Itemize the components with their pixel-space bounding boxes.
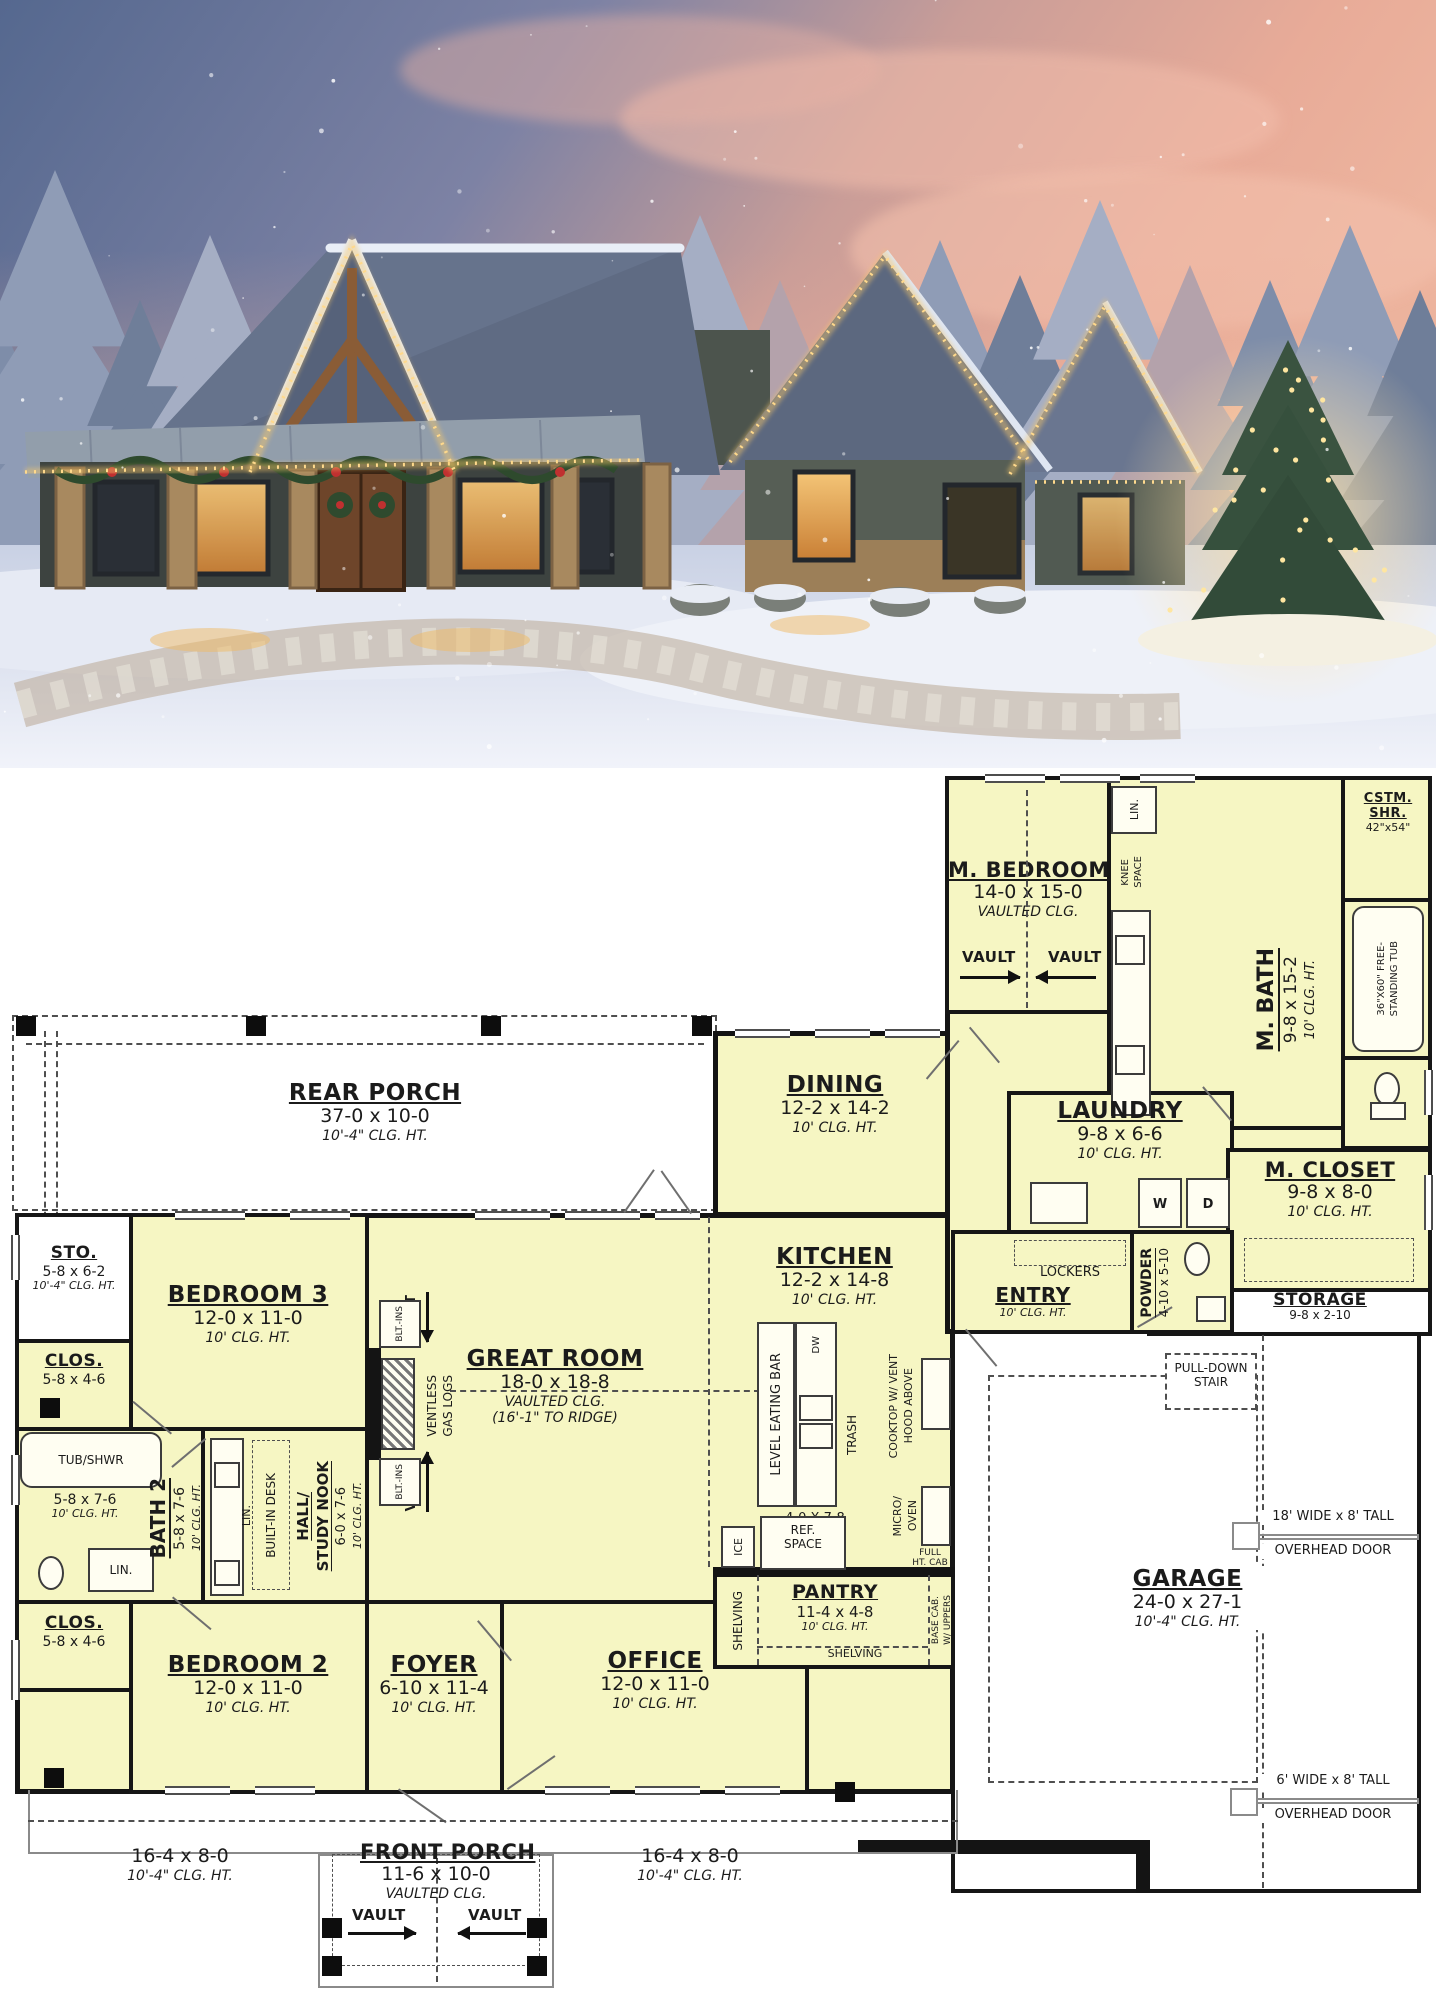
overhead-door-6-label: 6' WIDE x 8' TALL bbox=[1262, 1774, 1404, 1789]
overhead-door-18 bbox=[1256, 1534, 1419, 1540]
house-plan-page: REAR PORCH 37-0 x 10-0 10'-4" CLG. HT. bbox=[0, 0, 1436, 2000]
vault-arrow-down bbox=[426, 1292, 429, 1342]
great-room-label: GREAT ROOM 18-0 x 18-8 VAULTED CLG. (16'… bbox=[450, 1346, 660, 1426]
window bbox=[475, 1211, 550, 1220]
lockers-label: LOCKERS bbox=[1014, 1266, 1126, 1281]
bath2-label: BATH 2 5-8 x 7-6 10' CLG. HT. bbox=[142, 1448, 206, 1588]
porch-column bbox=[692, 1016, 712, 1036]
porch-column bbox=[246, 1016, 266, 1036]
base-cab-label: BASE CAB. W/ UPPERS bbox=[928, 1578, 956, 1662]
sink bbox=[214, 1462, 240, 1488]
bedroom3-label: BEDROOM 312-0 x 11-010' CLG. HT. bbox=[148, 1282, 348, 1346]
laundry-sink bbox=[1030, 1182, 1088, 1224]
kitchen-open-line bbox=[708, 1217, 710, 1567]
vault-text: VAULT bbox=[352, 1906, 406, 1924]
rear-porch-label: REAR PORCH 37-0 x 10-0 10'-4" CLG. HT. bbox=[275, 1080, 475, 1144]
knee-space-label: KNEE SPACE bbox=[1110, 840, 1154, 904]
window bbox=[735, 1029, 790, 1038]
window bbox=[1424, 1070, 1433, 1115]
closet-bottom-label: CLOS.5-8 x 4-6 bbox=[22, 1614, 126, 1650]
ventless-gas-logs-label: VENTLESS GAS LOGS bbox=[420, 1350, 460, 1462]
washer: W bbox=[1138, 1178, 1182, 1228]
porch-column bbox=[40, 1398, 60, 1418]
overhead-door-18-label2: OVERHEAD DOOR bbox=[1262, 1544, 1404, 1559]
window bbox=[885, 1029, 940, 1038]
cooktop-label: COOKTOP W/ VENT HOOD ABOVE bbox=[882, 1344, 920, 1468]
dishwasher-label: DW bbox=[800, 1330, 832, 1360]
kitchen-label: KITCHEN12-2 x 14-810' CLG. HT. bbox=[742, 1244, 927, 1308]
porch-wing-left-label: 16-4 x 8-010'-4" CLG. HT. bbox=[105, 1846, 255, 1884]
tub-label: 36"X60" FREE- STANDING TUB bbox=[1358, 912, 1418, 1046]
shelving-label-h: SHELVING bbox=[800, 1648, 910, 1661]
dryer-label: D bbox=[1203, 1197, 1214, 1212]
pull-down-stair-label: PULL-DOWN STAIR bbox=[1165, 1362, 1257, 1390]
blt-ins-label: BLT.-INS bbox=[381, 1459, 419, 1505]
master-closet-label: M. CLOSET9-8 x 8-010' CLG. HT. bbox=[1250, 1158, 1410, 1220]
ref-space-label: REF. SPACE bbox=[762, 1524, 844, 1552]
built-in-desk-label: BUILT-IN DESK bbox=[254, 1440, 288, 1590]
entry-label: ENTRY 10' CLG. HT. bbox=[968, 1284, 1098, 1320]
vault-text: VAULT bbox=[1048, 948, 1102, 966]
toilet bbox=[1184, 1242, 1210, 1276]
ridge-line bbox=[1026, 790, 1028, 1008]
dining-label: DINING12-2 x 14-210' CLG. HT. bbox=[745, 1072, 925, 1136]
window bbox=[11, 1235, 20, 1280]
master-bedroom-label: M. BEDROOM14-0 x 15-0VAULTED CLG. bbox=[948, 858, 1108, 920]
micro-oven-label: MICRO/ OVEN bbox=[890, 1484, 920, 1548]
front-porch-line bbox=[28, 1820, 958, 1822]
eating-bar-label: LEVEL EATING BAR bbox=[759, 1326, 793, 1503]
porch-column bbox=[16, 1016, 36, 1036]
door-jamb bbox=[1232, 1522, 1260, 1550]
island-sink bbox=[799, 1423, 833, 1449]
fireplace bbox=[381, 1358, 415, 1450]
sto-label: STO.5-8 x 6-210'-4" CLG. HT. bbox=[20, 1244, 128, 1292]
door-jamb bbox=[1230, 1788, 1258, 1816]
dryer: D bbox=[1186, 1178, 1230, 1228]
window bbox=[1140, 774, 1195, 783]
overhead-door-18-label: 18' WIDE x 8' TALL bbox=[1262, 1510, 1404, 1525]
foyer-label: FOYER6-10 x 11-410' CLG. HT. bbox=[368, 1652, 500, 1716]
front-porch-label: FRONT PORCH 11-6 x 10-0 VAULTED CLG. bbox=[360, 1840, 512, 1902]
blt-ins-label: BLT.-INS bbox=[381, 1301, 419, 1347]
bedroom2-label: BEDROOM 212-0 x 11-010' CLG. HT. bbox=[148, 1652, 348, 1716]
window bbox=[565, 1211, 640, 1220]
hall-study-label: HALL/ STUDY NOOK 6-0 x 7-6 10' CLG. HT. bbox=[292, 1436, 366, 1596]
vault-ridge-line bbox=[450, 1390, 760, 1392]
exterior-rendering-photo bbox=[0, 0, 1436, 768]
sink bbox=[214, 1560, 240, 1586]
rear-porch-inner-line bbox=[26, 1043, 704, 1045]
porch-column bbox=[481, 1016, 501, 1036]
trash-label: TRASH bbox=[838, 1400, 866, 1470]
washer-label: W bbox=[1153, 1197, 1167, 1212]
window bbox=[11, 1455, 20, 1505]
sink bbox=[1115, 1045, 1145, 1075]
closet-shelf-line bbox=[1244, 1238, 1414, 1282]
powder-label: POWDER 4-10 x 5-10 bbox=[1134, 1238, 1176, 1328]
tub-shower: TUB/SHWR bbox=[20, 1432, 162, 1488]
overhead-door-6-label2: OVERHEAD DOOR bbox=[1262, 1808, 1404, 1823]
vault-arrow-right bbox=[960, 976, 1020, 979]
vault-arrow-right bbox=[348, 1932, 416, 1935]
storage-label: STORAGE9-8 x 2-10 bbox=[1240, 1292, 1400, 1321]
office-label: OFFICE12-0 x 11-010' CLG. HT. bbox=[545, 1648, 765, 1712]
toilet bbox=[38, 1556, 64, 1590]
fireplace-wall bbox=[365, 1348, 381, 1460]
closet-top-label: CLOS.5-8 x 4-6 bbox=[22, 1352, 126, 1388]
linen-label: LIN. bbox=[109, 1563, 132, 1577]
window bbox=[175, 1211, 245, 1220]
sink bbox=[1115, 935, 1145, 965]
garage-step-wall bbox=[1136, 1840, 1150, 1893]
porch-wing-right-label: 16-4 x 8-010'-4" CLG. HT. bbox=[615, 1846, 765, 1884]
window bbox=[1424, 1175, 1433, 1230]
garage-label: GARAGE24-0 x 27-110'-4" CLG. HT. bbox=[1105, 1566, 1270, 1630]
lockers-box bbox=[1014, 1240, 1126, 1266]
porch-column bbox=[322, 1918, 342, 1938]
window bbox=[290, 1211, 350, 1220]
porch-column bbox=[527, 1918, 547, 1938]
window bbox=[985, 774, 1045, 783]
master-bath-label: M. BATH 9-8 x 15-2 10' CLG. HT. bbox=[1246, 880, 1326, 1120]
porch-column bbox=[527, 1956, 547, 1976]
porch-column bbox=[44, 1768, 64, 1788]
pantry-label: PANTRY 11-4 x 4-8 10' CLG. HT. bbox=[765, 1582, 905, 1634]
custom-shower-label: CSTM.SHR.42"x54" bbox=[1352, 792, 1424, 835]
overhead-door-6 bbox=[1254, 1798, 1419, 1804]
tub-shower-label: TUB/SHWR bbox=[58, 1453, 123, 1467]
linen-label: LIN. bbox=[1113, 788, 1155, 832]
cooktop bbox=[921, 1358, 951, 1430]
island-sink bbox=[799, 1395, 833, 1421]
window bbox=[1060, 774, 1120, 783]
ice-label: ICE bbox=[723, 1528, 753, 1566]
vault-text: VAULT bbox=[962, 948, 1016, 966]
full-height-cabinet-label: FULL HT. CAB bbox=[908, 1548, 952, 1569]
micro-oven-cabinet bbox=[921, 1486, 951, 1546]
vault-text: VAULT bbox=[468, 1906, 522, 1924]
laundry-label: LAUNDRY9-8 x 6-610' CLG. HT. bbox=[1030, 1098, 1210, 1162]
toilet bbox=[1374, 1072, 1400, 1106]
porch-column bbox=[835, 1782, 855, 1802]
vault-arrow-left bbox=[1036, 976, 1096, 979]
vault-arrow-left bbox=[458, 1932, 526, 1935]
toilet-tank bbox=[1370, 1102, 1406, 1120]
porch-column bbox=[322, 1956, 342, 1976]
sink bbox=[1196, 1296, 1226, 1322]
window bbox=[655, 1211, 700, 1220]
bath2-dims-label: 5-8 x 7-610' CLG. HT. bbox=[25, 1492, 145, 1521]
window bbox=[815, 1029, 870, 1038]
window bbox=[11, 1640, 20, 1700]
